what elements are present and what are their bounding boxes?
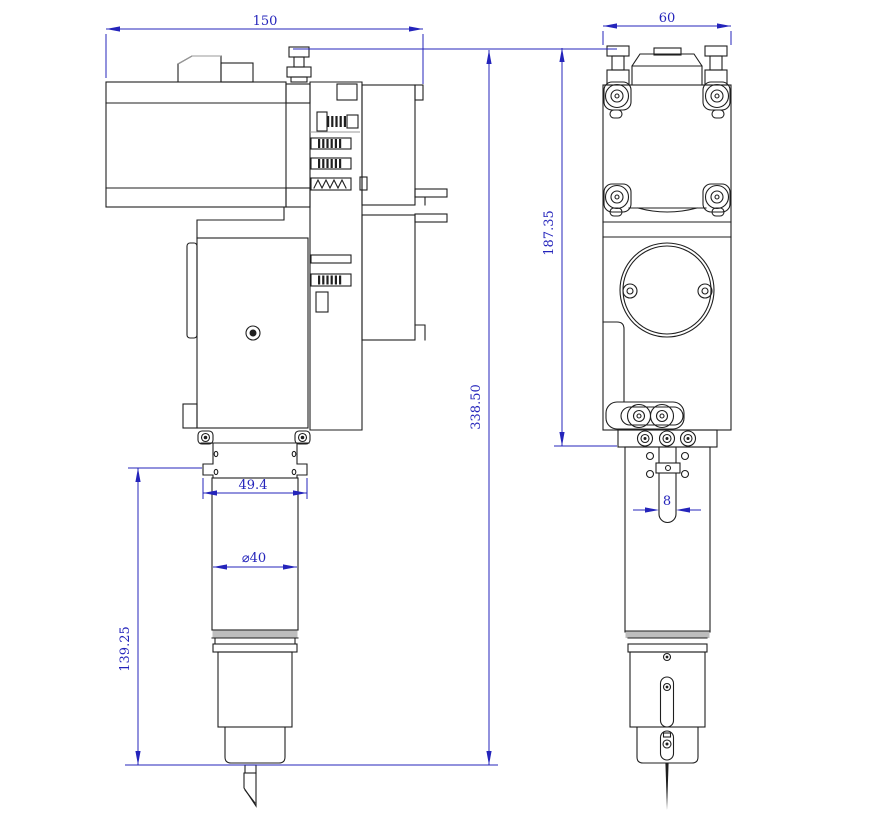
pin-upper	[415, 189, 447, 197]
dim-slot-width: 8	[633, 494, 701, 513]
dim-mount-width: 49.4	[203, 478, 307, 499]
dim-text-150: 150	[253, 14, 278, 29]
mount-block	[362, 85, 447, 340]
threaded-shaft-rows	[310, 112, 367, 312]
dim-total-height: 338.50	[125, 49, 617, 765]
dim-side-width: 60	[603, 11, 731, 45]
dim-text-8: 8	[663, 494, 671, 509]
dim-text-dia-40: ⌀40	[242, 551, 266, 566]
barrel	[212, 478, 298, 806]
clamp-collar	[198, 431, 310, 478]
guide-slot	[659, 447, 676, 523]
head-block	[183, 238, 308, 428]
spring-coil	[314, 180, 346, 188]
top-screw	[287, 47, 311, 82]
side-bracket	[603, 322, 684, 429]
dim-barrel-diameter: ⌀40	[213, 551, 297, 570]
pin-lower	[415, 214, 447, 222]
front-view	[106, 47, 447, 806]
dim-text-338-50: 338.50	[469, 384, 484, 430]
motor-block	[106, 56, 310, 238]
motor-mount-circle	[620, 243, 714, 337]
dim-text-187-35: 187.35	[542, 210, 557, 256]
nozzle-blade	[244, 765, 256, 806]
dim-lower-height: 139.25	[118, 468, 202, 765]
dim-text-139-25: 139.25	[118, 626, 133, 672]
side-view	[603, 46, 731, 810]
needle	[665, 763, 668, 810]
corner-bolts	[604, 82, 730, 216]
dim-text-60: 60	[659, 11, 676, 26]
cad-drawing: 150 60 338.50 187.35 139.25	[0, 0, 873, 817]
dim-text-49-4: 49.4	[239, 478, 268, 493]
side-body	[603, 82, 731, 447]
bottom-plate	[618, 430, 717, 447]
side-top-cap	[607, 46, 727, 85]
